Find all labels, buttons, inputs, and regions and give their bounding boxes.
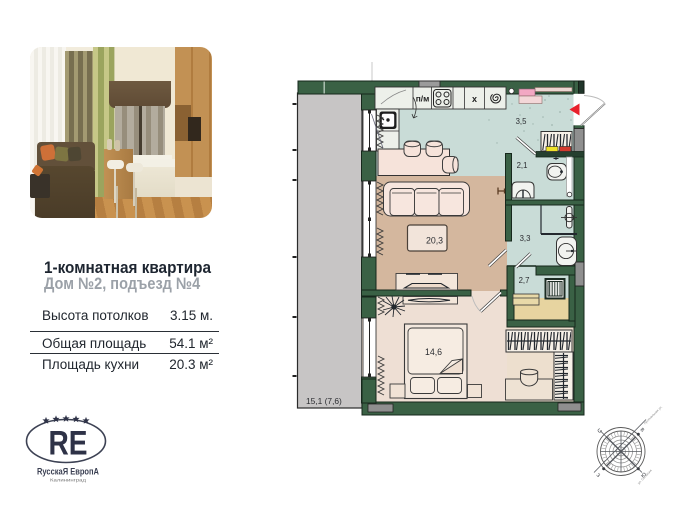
svg-text:3,5: 3,5 — [516, 117, 528, 126]
svg-text:20,3: 20,3 — [426, 236, 443, 246]
svg-text:В: В — [639, 427, 646, 434]
svg-text:2,1: 2,1 — [517, 161, 528, 170]
svg-text:Арсенальная ул.: Арсенальная ул. — [643, 405, 663, 425]
svg-text:З: З — [595, 472, 601, 478]
svg-text:2,7: 2,7 — [519, 276, 530, 285]
svg-text:x: x — [472, 94, 477, 104]
svg-text:п/м: п/м — [416, 94, 430, 104]
svg-text:14,6: 14,6 — [425, 347, 442, 357]
svg-text:15,1 (7,6): 15,1 (7,6) — [306, 396, 342, 406]
svg-text:3,3: 3,3 — [520, 234, 531, 243]
svg-text:ул. Согласия: ул. Согласия — [637, 468, 653, 485]
